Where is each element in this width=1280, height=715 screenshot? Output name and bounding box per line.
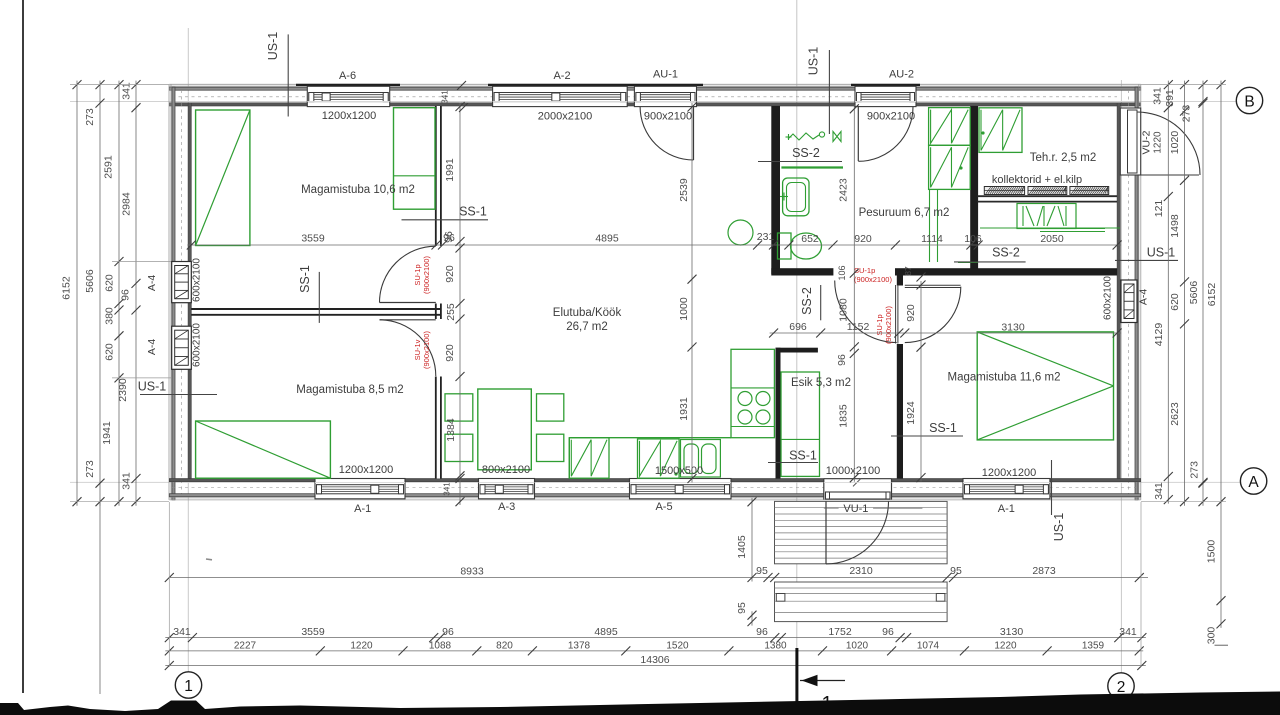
svg-text:96: 96 <box>443 231 455 243</box>
svg-text:341: 341 <box>1153 482 1165 500</box>
svg-text:1088: 1088 <box>429 640 452 651</box>
svg-text:2873: 2873 <box>1032 565 1056 577</box>
svg-text:1359: 1359 <box>1082 640 1105 651</box>
svg-text:3130: 3130 <box>1000 626 1024 638</box>
svg-text:1520: 1520 <box>666 640 689 651</box>
svg-text:SU-1p: SU-1p <box>413 264 422 285</box>
svg-text:US-1: US-1 <box>1052 513 1066 542</box>
svg-text:1220: 1220 <box>1153 131 1164 154</box>
svg-text:6152: 6152 <box>61 276 73 300</box>
svg-text:1405: 1405 <box>736 535 748 559</box>
svg-text:820: 820 <box>496 640 513 651</box>
svg-text:1152: 1152 <box>847 321 870 333</box>
svg-text:AU-2: AU-2 <box>889 69 914 81</box>
svg-text:A-3: A-3 <box>498 501 515 513</box>
svg-text:1500: 1500 <box>1206 540 1218 564</box>
svg-text:(900x2100): (900x2100) <box>422 331 431 369</box>
svg-text:96: 96 <box>882 626 894 638</box>
svg-text:(900x2100): (900x2100) <box>854 275 892 284</box>
svg-text:1220: 1220 <box>350 640 373 651</box>
svg-text:1020: 1020 <box>846 640 869 651</box>
svg-text:1200x1200: 1200x1200 <box>322 110 376 122</box>
svg-text:95: 95 <box>756 565 768 577</box>
svg-text:920: 920 <box>905 304 917 322</box>
svg-text:273: 273 <box>1189 461 1201 479</box>
svg-text:341: 341 <box>443 482 452 496</box>
svg-text:2984: 2984 <box>121 192 133 216</box>
svg-text:(900x2100): (900x2100) <box>422 256 431 294</box>
svg-text:A-5: A-5 <box>655 501 672 513</box>
svg-text:341: 341 <box>121 472 133 490</box>
svg-text:1200x1200: 1200x1200 <box>982 467 1036 479</box>
svg-text:5606: 5606 <box>84 269 96 293</box>
svg-text:Esik 5,3 m2: Esik 5,3 m2 <box>791 377 851 389</box>
svg-text:kollektorid + el.kilp: kollektorid + el.kilp <box>992 174 1082 186</box>
svg-text:A-1: A-1 <box>354 503 371 515</box>
svg-text:Magamistuba 10,6 m2: Magamistuba 10,6 m2 <box>301 184 415 196</box>
svg-text:2390: 2390 <box>117 378 129 402</box>
svg-text:Magamistuba 11,6 m2: Magamistuba 11,6 m2 <box>948 372 1061 384</box>
svg-text:273: 273 <box>84 108 96 126</box>
svg-text:121: 121 <box>1153 200 1165 218</box>
svg-text:Teh.r. 2,5 m2: Teh.r. 2,5 m2 <box>1030 152 1096 164</box>
svg-text:1941: 1941 <box>101 421 113 445</box>
svg-text:Magamistuba 8,5 m2: Magamistuba 8,5 m2 <box>296 384 403 396</box>
svg-text:4895: 4895 <box>595 233 619 245</box>
svg-text:4129: 4129 <box>1153 323 1165 347</box>
svg-text:2591: 2591 <box>103 155 115 179</box>
svg-text:600x2100: 600x2100 <box>1103 276 1114 320</box>
svg-text:920: 920 <box>444 344 456 362</box>
svg-text:1991: 1991 <box>444 158 456 182</box>
svg-text:300: 300 <box>1206 627 1218 645</box>
svg-text:96: 96 <box>442 626 454 638</box>
svg-text:Pesuruum 6,7 m2: Pesuruum 6,7 m2 <box>859 207 950 219</box>
svg-text:380: 380 <box>104 307 116 325</box>
svg-text:SS-1: SS-1 <box>929 421 957 435</box>
svg-text:Elutuba/Köök: Elutuba/Köök <box>553 307 622 319</box>
svg-text:A-1: A-1 <box>998 503 1015 515</box>
svg-text:A-6: A-6 <box>339 70 356 82</box>
svg-text:1498: 1498 <box>1169 214 1181 238</box>
svg-text:1000: 1000 <box>678 297 690 321</box>
svg-text:920: 920 <box>444 265 456 283</box>
svg-text:391: 391 <box>1164 89 1176 107</box>
svg-text:231: 231 <box>757 231 775 243</box>
svg-text:VU-1: VU-1 <box>843 503 868 515</box>
svg-text:1378: 1378 <box>568 640 591 651</box>
svg-text:3559: 3559 <box>301 233 325 245</box>
svg-text:106: 106 <box>837 265 847 280</box>
svg-text:4895: 4895 <box>594 626 618 638</box>
svg-text:900x2100: 900x2100 <box>644 111 692 123</box>
svg-text:341: 341 <box>1152 87 1164 105</box>
svg-text:5606: 5606 <box>1188 281 1200 305</box>
svg-text:SU-1p: SU-1p <box>875 314 884 335</box>
svg-text:SS-2: SS-2 <box>800 287 814 315</box>
svg-text:(900x2100): (900x2100) <box>884 306 893 344</box>
svg-text:2423: 2423 <box>838 178 850 202</box>
svg-text:620: 620 <box>104 343 116 361</box>
svg-text:1000x2100: 1000x2100 <box>826 465 880 477</box>
svg-text:3559: 3559 <box>301 626 325 638</box>
svg-text:A-4: A-4 <box>1138 289 1150 306</box>
svg-text:1752: 1752 <box>828 626 852 638</box>
svg-text:900x2100: 900x2100 <box>867 111 915 123</box>
svg-text:US-1: US-1 <box>138 380 167 394</box>
svg-text:1384: 1384 <box>445 418 457 442</box>
svg-text:96: 96 <box>836 354 848 366</box>
svg-text:1835: 1835 <box>838 404 850 428</box>
svg-text:95: 95 <box>736 602 748 614</box>
svg-text:600x2100: 600x2100 <box>192 323 203 367</box>
svg-text:87: 87 <box>903 266 913 276</box>
svg-text:1074: 1074 <box>917 640 940 651</box>
svg-text:SS-2: SS-2 <box>992 246 1020 260</box>
svg-text:A-2: A-2 <box>553 70 570 82</box>
svg-text:B: B <box>1244 94 1254 111</box>
svg-text:255: 255 <box>445 303 457 321</box>
svg-text:96: 96 <box>120 289 132 301</box>
svg-text:SS-1: SS-1 <box>298 265 312 293</box>
svg-text:14306: 14306 <box>640 654 669 666</box>
svg-text:SS-1: SS-1 <box>789 449 817 463</box>
svg-text:341: 341 <box>173 626 191 638</box>
svg-text:2623: 2623 <box>1169 402 1181 426</box>
svg-text:95: 95 <box>950 565 962 577</box>
svg-text:1931: 1931 <box>678 397 690 421</box>
svg-text:600x2100: 600x2100 <box>192 258 203 302</box>
svg-text:2539: 2539 <box>678 178 690 202</box>
svg-text:A: A <box>1248 474 1259 491</box>
svg-text:SU-1v: SU-1v <box>413 339 422 360</box>
svg-text:920: 920 <box>854 233 872 245</box>
svg-text:696: 696 <box>789 321 807 333</box>
svg-text:VU-2: VU-2 <box>1141 130 1153 154</box>
svg-text:A-4: A-4 <box>146 275 158 292</box>
svg-text:1020: 1020 <box>1169 131 1181 155</box>
svg-text:2000x2100: 2000x2100 <box>538 111 592 123</box>
svg-text:800x2100: 800x2100 <box>482 464 530 476</box>
svg-text:2050: 2050 <box>1040 233 1064 245</box>
svg-text:1: 1 <box>184 678 193 695</box>
svg-text:AU-1: AU-1 <box>653 69 678 81</box>
svg-text:1080: 1080 <box>838 298 850 322</box>
svg-text:620: 620 <box>1169 293 1181 311</box>
svg-text:620: 620 <box>104 274 116 292</box>
svg-text:2227: 2227 <box>234 640 257 651</box>
svg-text:3130: 3130 <box>1001 322 1025 334</box>
svg-text:106: 106 <box>964 233 982 245</box>
svg-text:1220: 1220 <box>994 640 1017 651</box>
svg-text:US-1: US-1 <box>1147 246 1176 260</box>
svg-text:273: 273 <box>1181 105 1193 123</box>
svg-text:US-1: US-1 <box>266 32 280 61</box>
svg-text:2: 2 <box>1117 679 1126 696</box>
svg-text:341: 341 <box>1119 626 1137 638</box>
svg-text:273: 273 <box>84 460 96 478</box>
svg-text:6152: 6152 <box>1206 283 1218 307</box>
svg-text:SS-2: SS-2 <box>792 146 820 160</box>
svg-text:26,7 m2: 26,7 m2 <box>566 321 608 333</box>
svg-text:1380: 1380 <box>764 640 787 651</box>
svg-text:652: 652 <box>801 233 819 245</box>
svg-text:96: 96 <box>756 626 768 638</box>
svg-text:8933: 8933 <box>460 566 484 578</box>
svg-text:SS-1: SS-1 <box>459 205 487 219</box>
svg-text:1200x1200: 1200x1200 <box>339 464 393 476</box>
svg-text:1114: 1114 <box>921 233 943 245</box>
svg-text:US-1: US-1 <box>807 47 821 76</box>
svg-text:1924: 1924 <box>905 401 917 425</box>
svg-text:2310: 2310 <box>849 565 873 577</box>
svg-text:341: 341 <box>441 90 450 104</box>
svg-text:A-4: A-4 <box>146 339 158 356</box>
